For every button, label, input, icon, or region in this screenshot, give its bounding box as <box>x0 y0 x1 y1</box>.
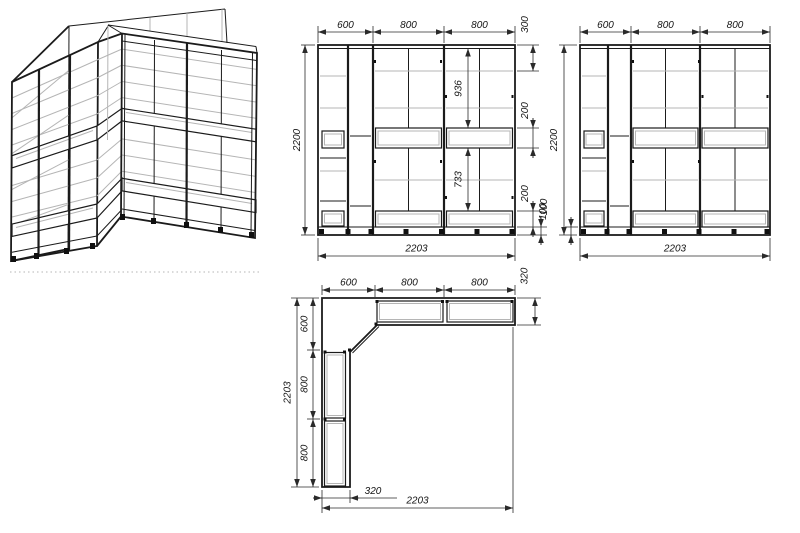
dim-top-800b: 800 <box>471 20 488 31</box>
cabinet-structure <box>580 45 770 235</box>
dim-bottom-2203: 2203 <box>405 496 429 507</box>
dim-top-800b: 800 <box>727 20 744 31</box>
dim-top-600: 600 <box>340 278 357 289</box>
isometric-view <box>10 9 262 272</box>
plan-view: 600 800 800 320 2203 600 800 800 320 220… <box>283 267 542 513</box>
dim-top-800b: 800 <box>471 278 488 289</box>
dim-right-320: 320 <box>520 267 531 284</box>
dim-left-2203: 2203 <box>283 381 294 405</box>
dim-width-2203: 2203 <box>663 244 687 255</box>
dim-733: 733 <box>454 171 465 188</box>
technical-drawing: 600 800 800 2200 2203 300 936 200 733 20… <box>0 0 800 533</box>
dim-top-600: 600 <box>597 20 614 31</box>
dim-top-600: 600 <box>337 20 354 31</box>
dim-top-800a: 800 <box>401 278 418 289</box>
dim-bottom-320: 320 <box>365 486 382 497</box>
front-elevation-left: 600 800 800 2200 2203 300 936 200 733 20… <box>292 16 549 261</box>
dim-left-800b: 800 <box>300 444 311 461</box>
front-elevation-right: 600 800 800 2200 100 2203 <box>539 20 770 261</box>
dim-width-2203: 2203 <box>404 244 428 255</box>
dim-base-100: 100 <box>539 198 550 215</box>
dim-200b: 200 <box>520 185 531 203</box>
dim-height-2200: 2200 <box>292 128 303 152</box>
dim-height-2200: 2200 <box>549 128 560 152</box>
drawing-canvas: 600 800 800 2200 2203 300 936 200 733 20… <box>0 0 800 533</box>
dim-left-800a: 800 <box>300 376 311 393</box>
cabinet-structure <box>318 45 515 235</box>
cabinet-structure <box>322 298 515 487</box>
dim-left-600: 600 <box>300 315 311 332</box>
dim-300: 300 <box>520 16 531 33</box>
dim-936: 936 <box>454 80 465 97</box>
dim-200a: 200 <box>520 102 531 120</box>
dim-top-800a: 800 <box>657 20 674 31</box>
dim-top-800a: 800 <box>400 20 417 31</box>
